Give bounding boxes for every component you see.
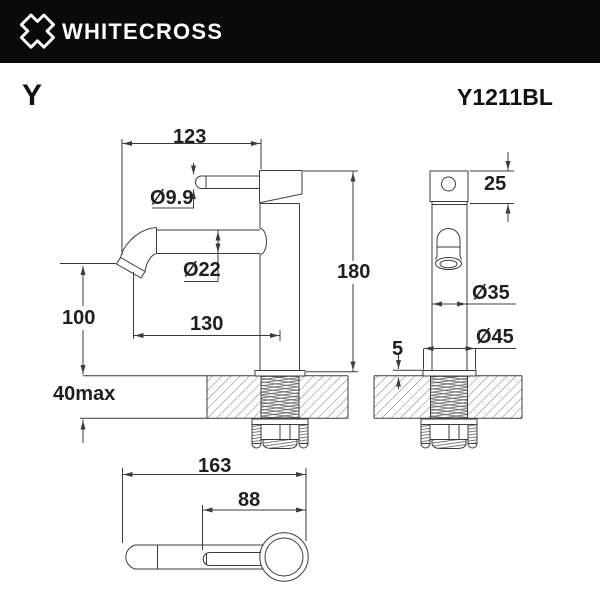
dim-label-handle-length: 88 (238, 490, 260, 510)
top-view-dimensions (123, 468, 307, 550)
dim-label-overall-width: 123 (173, 127, 206, 147)
dim-label-spout-outlet-height: 100 (61, 308, 96, 328)
deck-section-right (374, 371, 522, 419)
dim-label-base-diameter: Ø45 (476, 327, 514, 347)
front-view-drawing (430, 171, 468, 371)
dim-label-body-diameter: Ø35 (472, 283, 510, 303)
top-view-drawing (126, 533, 308, 581)
mounting-nut-left (252, 419, 308, 449)
dim-label-handle-diameter: Ø9.9 (150, 188, 193, 208)
dim-label-total-height: 180 (336, 262, 371, 282)
deck-section-left (80, 371, 348, 419)
technical-drawing-canvas (0, 0, 600, 600)
spec-sheet-page: WHITECROSS Y Y1211BL (0, 0, 600, 600)
dim-label-top-cap-height: 25 (484, 174, 506, 194)
dim-label-spout-diameter: Ø22 (183, 260, 221, 280)
dim-label-spout-reach: 130 (190, 314, 223, 334)
dim-label-overall-length: 163 (198, 456, 231, 476)
mounting-nut-right (421, 419, 477, 449)
dim-label-base-lip-height: 5 (392, 339, 403, 359)
dim-label-deck-thickness: 40max (52, 384, 116, 404)
